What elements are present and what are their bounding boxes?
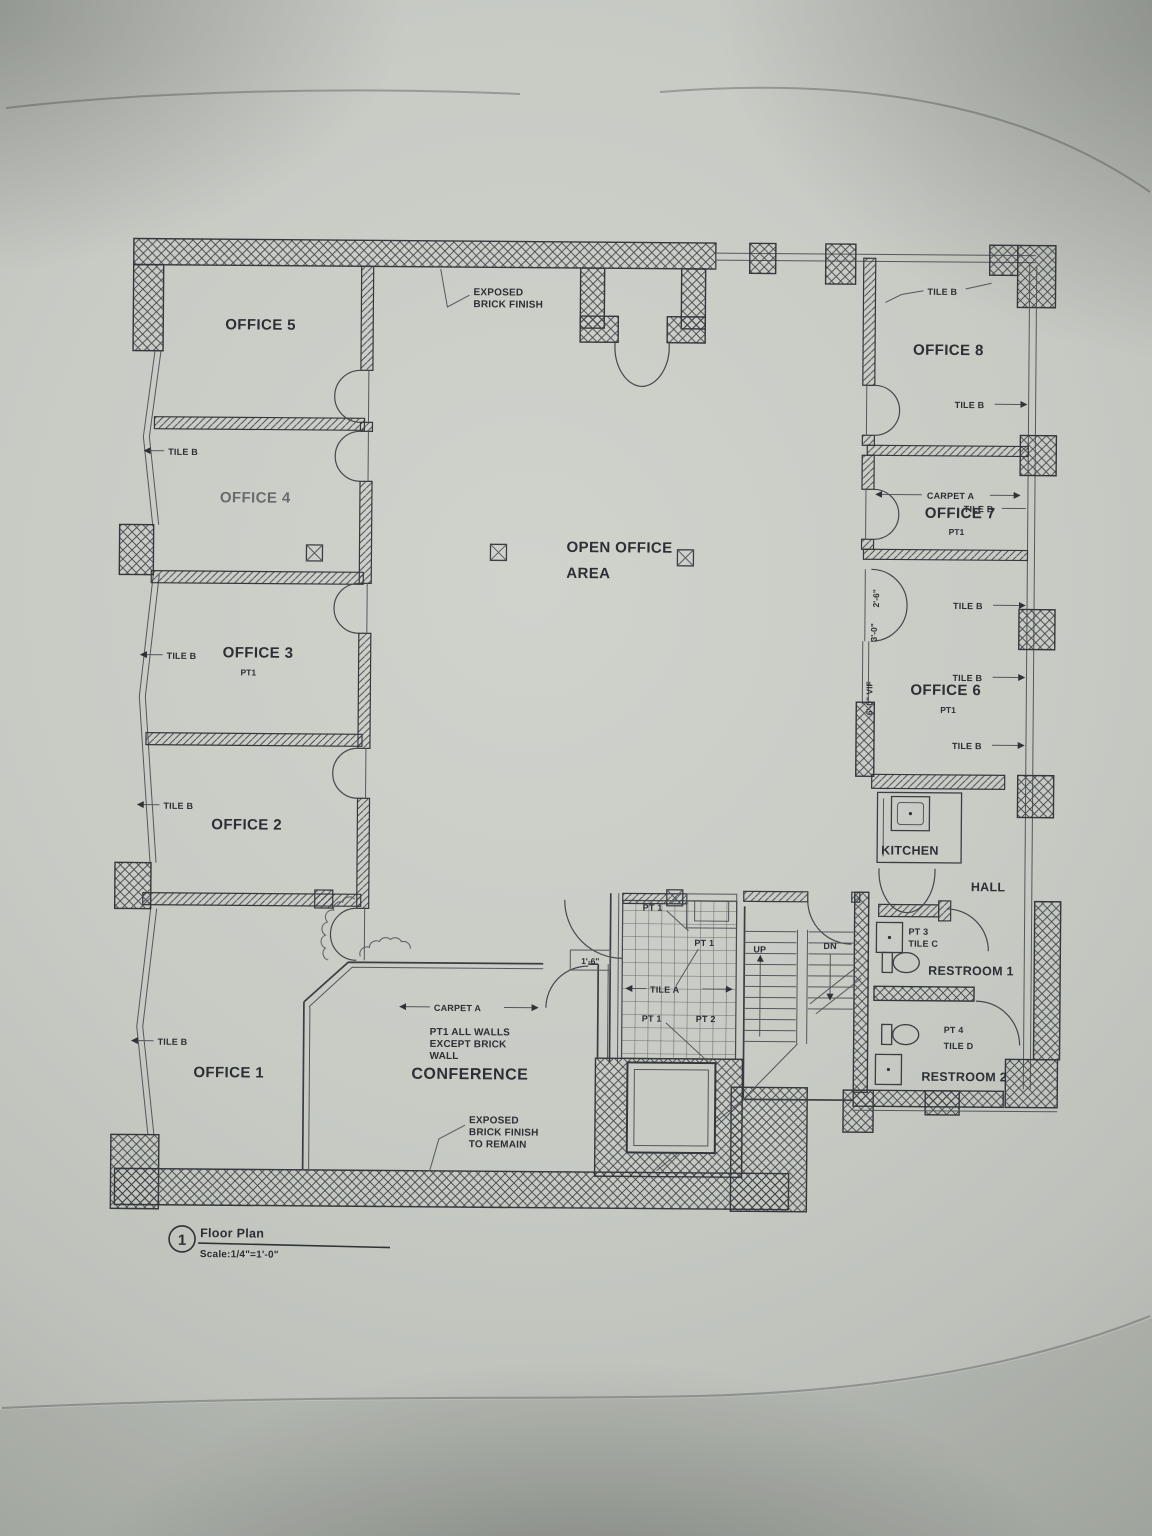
stair-down-label: DN <box>823 941 836 951</box>
note-conference-finish-line1: PT1 ALL WALLS <box>430 1027 511 1039</box>
column-marker-icon <box>677 550 693 566</box>
finish-label-pt-2: PT 2 <box>696 1014 716 1024</box>
finish-label-tile-b: TILE B <box>952 741 982 751</box>
restroom1-sink <box>876 922 902 952</box>
finish-label-pt-1: PT 1 <box>643 903 663 913</box>
finish-label-pt-4: PT 4 <box>944 1025 964 1035</box>
room-label-restroom-2: RESTROOM 2 <box>921 1070 1007 1085</box>
dimension-door-a: 2'-6" <box>871 589 881 607</box>
photographed-plan-sheet: OFFICE 5 OFFICE 4 OFFICE 3 PT1 OFFICE 2 … <box>0 0 1152 1536</box>
finish-label-pt1: PT1 <box>940 705 956 715</box>
room-label-office-1: OFFICE 1 <box>193 1064 264 1082</box>
finish-label-pt1: PT1 <box>949 527 965 537</box>
column-marker-icon <box>490 544 506 560</box>
drawing-title: Floor Plan <box>200 1226 264 1241</box>
room-label-hall: HALL <box>971 880 1006 894</box>
restroom2-sink <box>875 1054 901 1084</box>
room-label-office-5: OFFICE 5 <box>225 316 296 334</box>
finish-label-tile-b: TILE B <box>168 447 198 457</box>
column-marker-icon <box>306 545 322 561</box>
note-exposed-brick-line1: EXPOSED <box>473 287 523 298</box>
room-label-conference: CONFERENCE <box>411 1066 528 1084</box>
title-block: 1 Floor Plan Scale:1/4"=1'-0" <box>169 1226 390 1262</box>
room-label-office-3: OFFICE 3 <box>223 644 294 662</box>
finish-label-tile-b: TILE B <box>158 1037 188 1047</box>
stairs <box>569 900 862 1178</box>
finish-label-tile-d: TILE D <box>944 1041 974 1051</box>
room-label-office-4: OFFICE 4 <box>220 489 291 507</box>
finish-label-tile-b: TILE B <box>953 601 983 611</box>
interior-walls <box>141 253 1064 1176</box>
detail-number: 1 <box>178 1232 186 1249</box>
finish-label-tile-b: TILE B <box>955 400 985 410</box>
finish-label-tile-b: TILE B <box>163 801 193 811</box>
finish-label-tile-b: TILE B <box>964 504 994 514</box>
room-label-office-8: OFFICE 8 <box>913 342 984 360</box>
dimension-opening-vif: 6'-0" VIF <box>864 681 874 715</box>
finish-label-tile-c: TILE C <box>908 939 938 949</box>
finish-label-pt1: PT1 <box>240 667 256 677</box>
finish-label-pt-1: PT 1 <box>642 1014 662 1024</box>
finish-label-tile-b: TILE B <box>952 673 982 683</box>
room-label-open-office-area: AREA <box>566 565 610 582</box>
note-conference-finish-line3: WALL <box>429 1051 458 1062</box>
dimension-door-b: 3'-0" <box>869 623 879 641</box>
finish-label-tile-b: TILE B <box>927 287 957 297</box>
floor-plan-drawing: OFFICE 5 OFFICE 4 OFFICE 3 PT1 OFFICE 2 … <box>0 0 1152 1536</box>
room-label-kitchen: KITCHEN <box>881 843 939 857</box>
room-label-restroom-1: RESTROOM 1 <box>928 964 1014 979</box>
room-label-open-office: OPEN OFFICE <box>566 539 672 557</box>
note-exposed-brick-remain-line2: BRICK FINISH <box>469 1127 539 1139</box>
dimension-lobby: 1'-6" <box>581 956 599 966</box>
labels: OFFICE 5 OFFICE 4 OFFICE 3 PT1 OFFICE 2 … <box>157 281 1019 1155</box>
leaders <box>131 267 1028 1176</box>
note-exposed-brick-remain-line3: TO REMAIN <box>469 1139 527 1150</box>
note-exposed-brick-remain-line1: EXPOSED <box>469 1115 519 1126</box>
finish-label-carpet-a: CARPET A <box>927 491 975 501</box>
plan: OFFICE 5 OFFICE 4 OFFICE 3 PT1 OFFICE 2 … <box>110 238 1066 1266</box>
note-conference-finish-line2: EXCEPT BRICK <box>430 1039 508 1051</box>
finish-label-carpet-a: CARPET A <box>434 1003 482 1013</box>
note-exposed-brick-line2: BRICK FINISH <box>473 299 543 311</box>
drawing-scale: Scale:1/4"=1'-0" <box>200 1249 279 1261</box>
room-label-office-2: OFFICE 2 <box>211 816 282 834</box>
restroom1-toilet <box>882 952 919 972</box>
stair-up-label: UP <box>753 944 766 954</box>
restroom2-toilet <box>882 1024 919 1044</box>
page-edges <box>0 88 1152 1536</box>
finish-label-pt-3: PT 3 <box>908 927 928 937</box>
finish-label-tile-a: TILE A <box>650 985 680 995</box>
finish-label-tile-b: TILE B <box>167 651 197 661</box>
finish-label-pt-1: PT 1 <box>694 938 714 948</box>
room-label-office-6: OFFICE 6 <box>910 682 981 700</box>
